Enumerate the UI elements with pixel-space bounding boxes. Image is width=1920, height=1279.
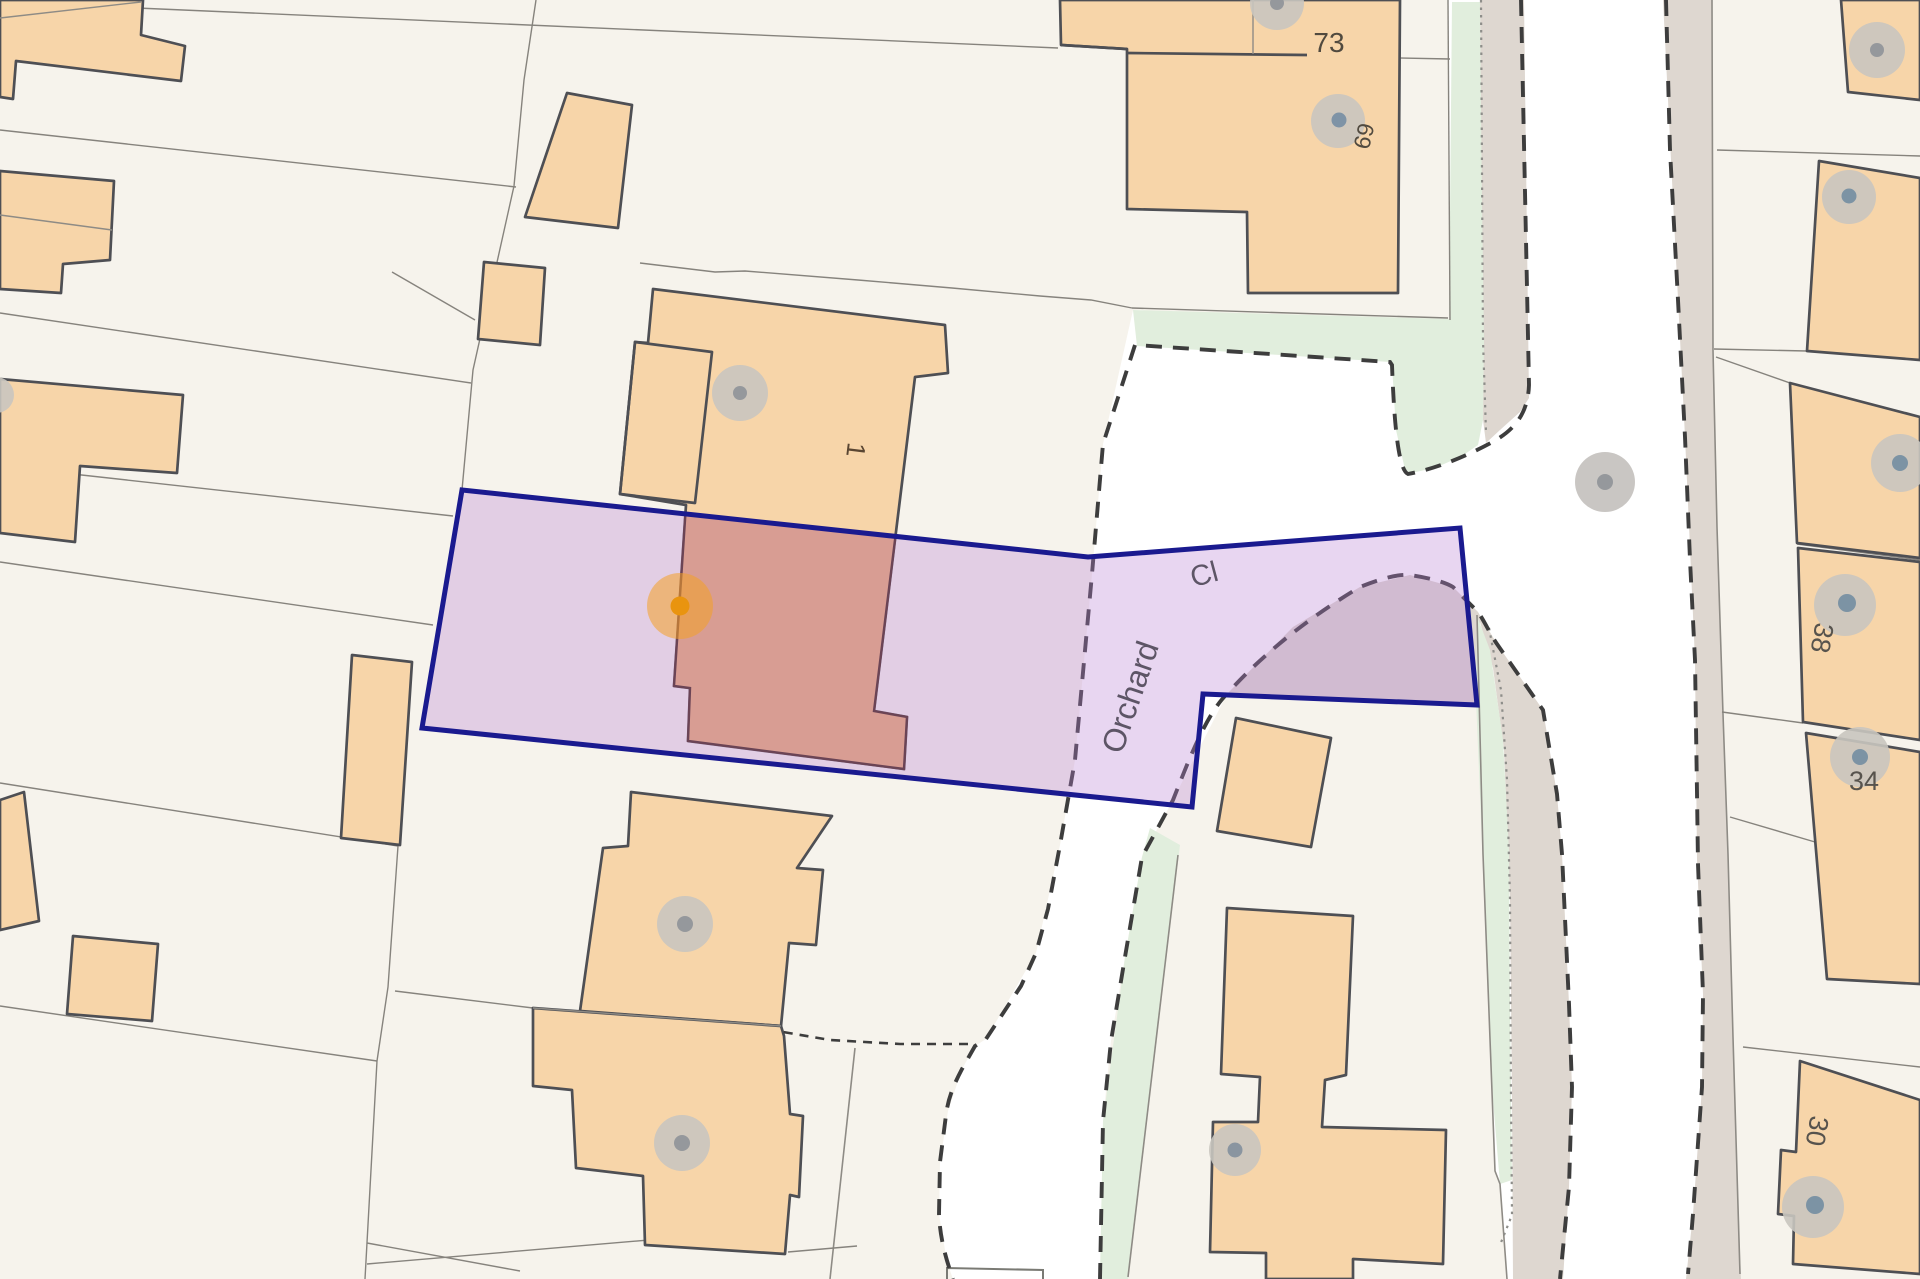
svg-text:73: 73 [1313, 27, 1344, 58]
svg-text:38: 38 [1805, 621, 1840, 656]
svg-text:34: 34 [1849, 766, 1879, 796]
svg-text:30: 30 [1800, 1114, 1835, 1149]
